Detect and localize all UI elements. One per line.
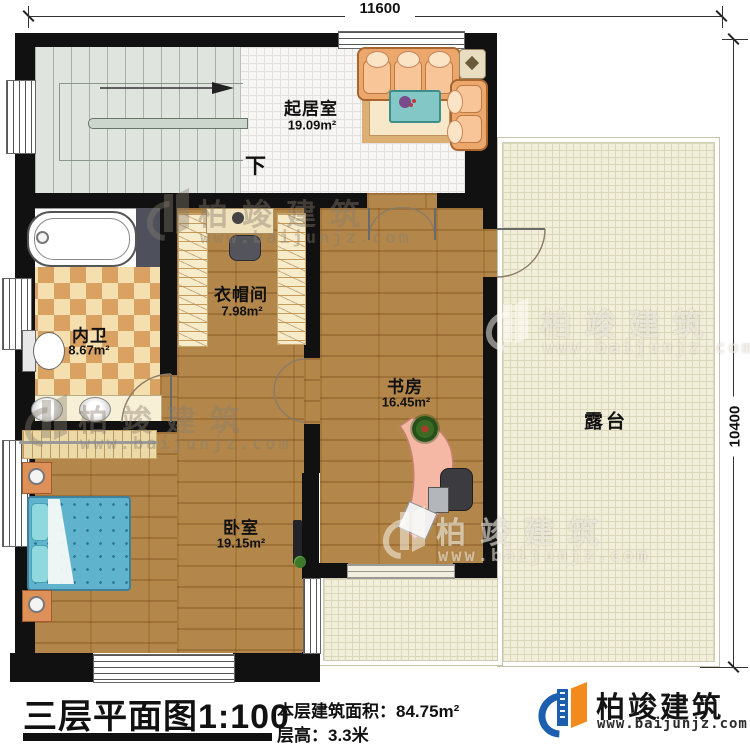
- extension-line: [722, 6, 723, 28]
- stairs-down-label: 下: [245, 150, 267, 180]
- stair-handrail: [88, 118, 248, 129]
- wall: [453, 563, 497, 578]
- plan-title: 三层平面图1:100: [23, 689, 290, 738]
- door-swing-terrace: [494, 226, 550, 282]
- double-door-living-study: [363, 205, 443, 250]
- wardrobe-right: [277, 213, 306, 345]
- terrace-grid: [502, 142, 715, 662]
- coffee-table: [389, 90, 441, 123]
- extension-line: [28, 6, 29, 28]
- sofa-pillow: [447, 90, 463, 114]
- window: [93, 654, 235, 683]
- right-dimension-line: [733, 39, 734, 668]
- stair-outline: [59, 83, 60, 161]
- room-label-living: 起居室: [284, 95, 338, 120]
- right-dimension-label: 10400: [727, 397, 744, 457]
- potted-plant: [412, 416, 438, 442]
- room-area-study: 16.45m²: [382, 395, 430, 410]
- toilet-bowl: [33, 332, 65, 370]
- wall: [437, 193, 497, 208]
- stair-outline: [59, 160, 243, 161]
- logo-tower-orange: [571, 682, 587, 728]
- sofa-pillow: [428, 51, 451, 68]
- logo-tower-blue: [557, 689, 568, 726]
- wall: [318, 563, 348, 578]
- top-dimension-label: 11600: [345, 0, 415, 17]
- bathtub-faucet: [36, 231, 49, 244]
- plan-title-text: 三层平面图: [23, 698, 198, 736]
- room-area-bath: 8.67m²: [68, 343, 109, 358]
- nightstand-lamp: [28, 468, 45, 485]
- towel-rack: [22, 430, 157, 459]
- terrace-grid: [323, 578, 498, 661]
- double-door-closet-study: [270, 355, 310, 425]
- table-flowers: [399, 96, 411, 108]
- sofa-pillow: [366, 51, 389, 68]
- room-label-terrace: 露台: [584, 407, 628, 434]
- window: [303, 578, 321, 654]
- wall: [463, 33, 497, 47]
- sofa-pillow: [397, 51, 420, 68]
- wall: [302, 652, 320, 682]
- stair-direction-arrow: [98, 80, 238, 96]
- wall: [304, 424, 320, 473]
- floor-height-text: 层高：3.3米: [277, 721, 369, 746]
- towel-rod: [19, 441, 158, 444]
- sofa-pillow: [447, 120, 463, 144]
- door-swing-bathroom: [118, 370, 174, 426]
- room-area-closet: 7.98m²: [221, 304, 262, 319]
- computer-monitor: [428, 487, 449, 513]
- bed-pillow: [31, 503, 49, 541]
- extension-line: [722, 39, 748, 40]
- wall: [233, 653, 303, 682]
- sink: [79, 397, 111, 422]
- room-label-closet: 衣帽间: [214, 281, 268, 306]
- room-area-living: 19.09m²: [288, 118, 336, 133]
- nightstand-lamp: [28, 596, 45, 613]
- terrace-floor: [497, 137, 720, 667]
- wall: [15, 33, 338, 47]
- brand-website: www.baijunjz.com: [597, 716, 748, 732]
- brand-logo: [541, 682, 595, 734]
- wall: [15, 193, 367, 208]
- wall: [304, 208, 320, 358]
- terrace-floor-south: [318, 578, 503, 666]
- dressing-stool: [229, 235, 261, 261]
- wall: [483, 277, 497, 564]
- wall: [10, 653, 93, 682]
- small-plant: [294, 556, 306, 568]
- dresser-mirror: [232, 212, 244, 224]
- window: [6, 80, 36, 154]
- title-underline: [23, 733, 272, 741]
- extension-line: [700, 667, 748, 668]
- wall: [160, 208, 177, 375]
- shower-panel: [136, 208, 160, 267]
- bed-pillow: [31, 545, 49, 583]
- sink: [31, 397, 63, 422]
- room-area-bedroom: 19.15m²: [217, 536, 265, 551]
- window: [347, 564, 455, 579]
- wardrobe-left: [178, 213, 208, 347]
- floor-area-text: 本层建筑面积：84.75m²: [277, 697, 459, 722]
- floor-plan: 11600 10400: [0, 0, 750, 747]
